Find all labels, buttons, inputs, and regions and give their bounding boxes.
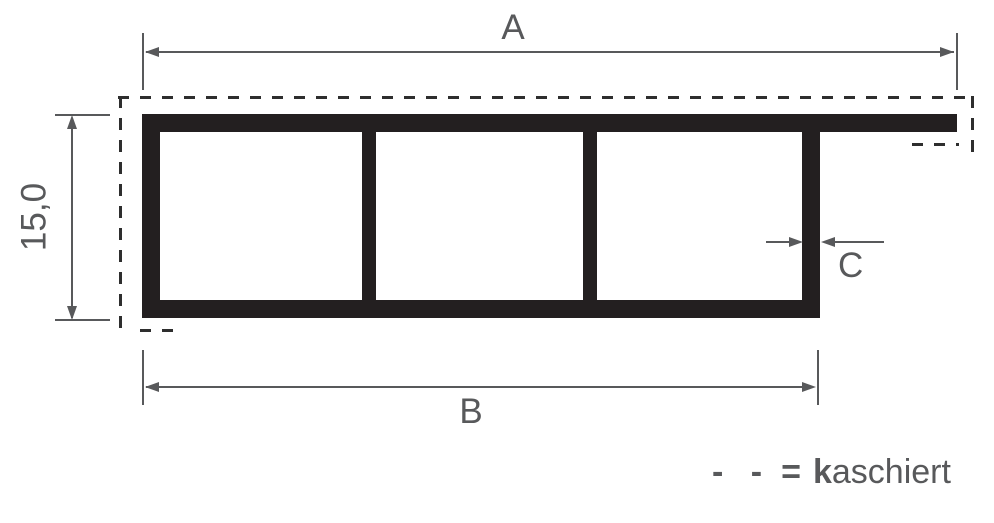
legend-equals-sign: = [781,455,801,489]
dim-c-label: C [838,248,863,283]
arrowhead-right-icon [940,47,954,57]
laminate-dash-right-end [971,96,974,152]
arrowhead-left-icon [145,47,159,57]
profile-chamber-3 [597,132,802,300]
dim-a-label: A [493,10,533,45]
dim-height-extension-tick-bottom [55,319,110,321]
dim-b-extension-tick-left [142,350,144,405]
legend-term-bold-initial: k [813,453,832,491]
legend-kaschiert: - - = kaschiert [712,455,951,489]
dim-b-label: B [451,394,491,429]
arrowhead-down-icon [67,306,77,320]
legend-dash-symbol: - - [712,455,771,489]
dim-height-line [71,118,73,318]
dim-b-extension-tick-right [817,350,819,405]
profile-chamber-2 [376,132,583,300]
dim-b-line [146,386,810,388]
profile-top-flange-extension [820,114,957,132]
dim-a-line [146,51,954,53]
dim-a-extension-tick-right [956,33,958,90]
arrowhead-left-icon [821,237,835,247]
legend-term: kaschiert [813,455,951,489]
profile-chamber-1 [160,132,362,300]
laminate-dash-bottom-left [140,329,184,332]
arrowhead-right-icon [789,237,803,247]
laminate-dash-top [118,96,975,99]
technical-drawing-canvas: A B 15,0 C - - = kaschiert [0,0,994,523]
dim-height-label: 15,0 [17,183,52,251]
dim-height-extension-tick-top [55,114,110,116]
dim-a-extension-tick-left [142,33,144,90]
arrowhead-left-icon [145,382,159,392]
arrowhead-right-icon [802,382,816,392]
laminate-dash-flange-underside [912,143,959,146]
legend-term-rest: aschiert [832,453,951,491]
arrowhead-up-icon [67,115,77,129]
laminate-dash-left [119,96,122,334]
